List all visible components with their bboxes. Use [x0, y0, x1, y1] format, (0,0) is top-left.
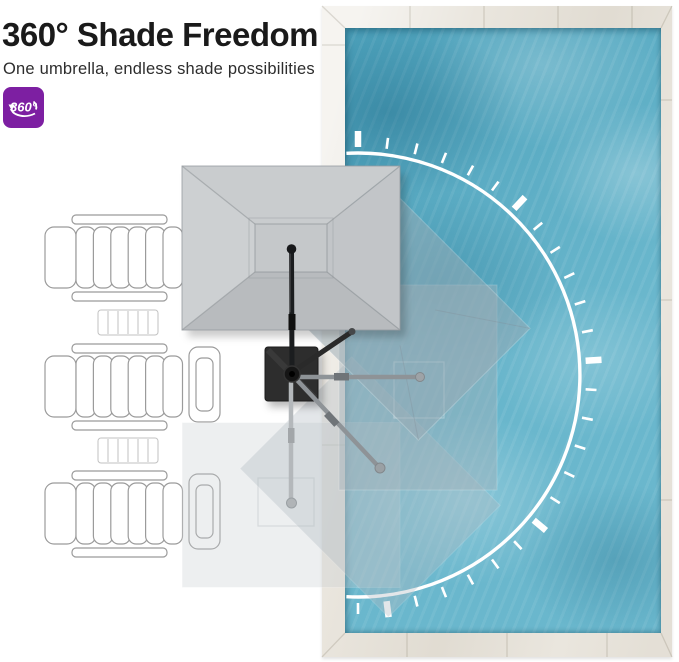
pool-lounger: [45, 344, 220, 430]
rotation-hub-center: [289, 371, 295, 377]
side-table: [98, 438, 158, 463]
side-table: [98, 310, 158, 335]
pole-finial: [287, 244, 297, 254]
product-infographic: 360° Shade Freedom One umbrella, endless…: [0, 0, 679, 662]
scene-objects: [0, 0, 679, 662]
